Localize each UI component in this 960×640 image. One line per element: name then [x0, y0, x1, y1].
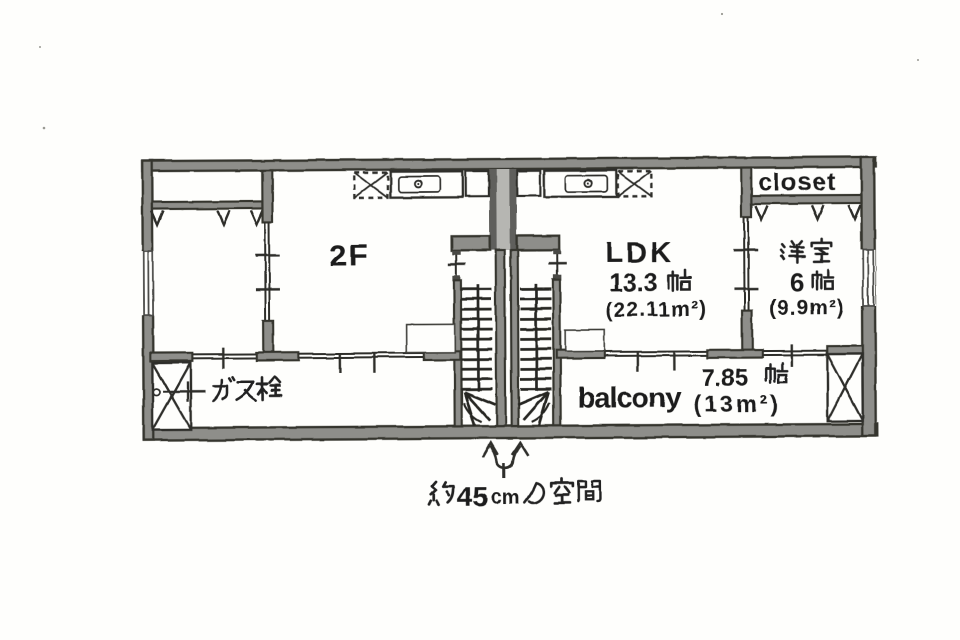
svg-text:(22.11m²): (22.11m²): [605, 298, 708, 322]
svg-text:closet: closet: [758, 168, 836, 196]
svg-text:6: 6: [790, 267, 805, 297]
svg-text:13.3: 13.3: [609, 269, 658, 297]
svg-text:7.85: 7.85: [701, 365, 748, 392]
svg-text:balcony: balcony: [577, 382, 681, 415]
svg-text:(13m²): (13m²): [694, 390, 781, 417]
svg-text:cm: cm: [491, 487, 520, 509]
svg-text:45: 45: [457, 481, 488, 512]
svg-text:LDK: LDK: [605, 237, 674, 269]
svg-text:(9.9m²): (9.9m²): [769, 296, 845, 319]
svg-text:2F: 2F: [330, 238, 370, 273]
